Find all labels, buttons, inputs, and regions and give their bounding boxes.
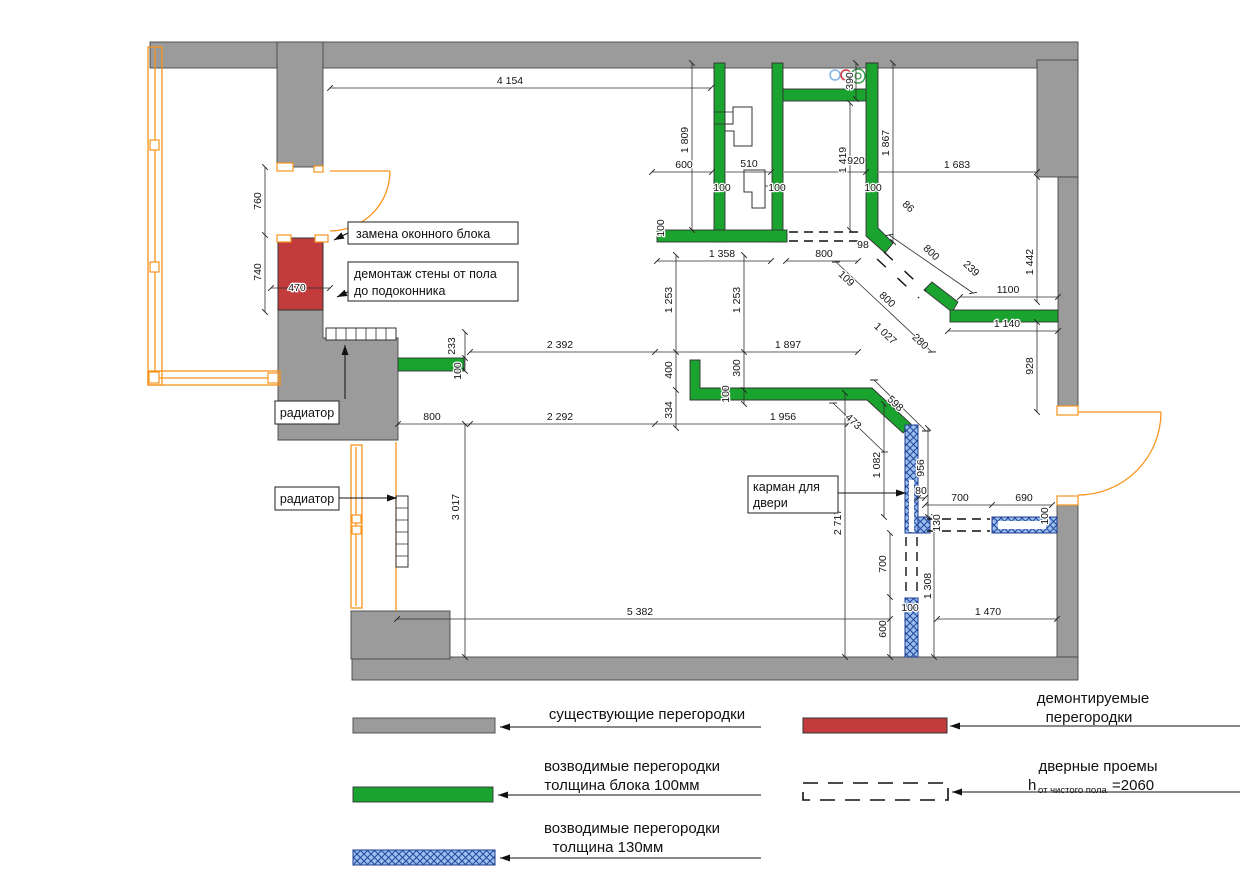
dimension-label: 280 [910, 331, 931, 352]
legend-label: существующие перегородки [549, 706, 745, 723]
callout-text: радиатор [280, 406, 334, 420]
dimension-label: 1 897 [775, 339, 801, 351]
legend-label: толщина блока 100мм [544, 777, 699, 794]
floor-plan-page: 4 1546005109201 6831001001001 3588009847… [0, 0, 1241, 875]
legend: существующие перегородки возводимые пере… [353, 690, 1240, 865]
dimension-label: 100 [1039, 507, 1051, 525]
dimension-label: 510 [740, 158, 758, 170]
dimension-label: 800 [921, 242, 942, 263]
legend-swatch-demolished [803, 718, 947, 733]
dimension-label: 1 140 [994, 318, 1020, 330]
legend-new-walls-100: возводимые перегородки толщина блока 100… [353, 758, 761, 802]
dimension-label: 700 [877, 555, 889, 573]
dimension-label: 100 [901, 602, 919, 614]
walls-existing [150, 42, 1078, 680]
callout-text: карман для [753, 480, 820, 494]
dimension-label: 109 [836, 268, 857, 289]
dimension-label: 1100 [997, 284, 1020, 296]
cold-water-riser-icon [830, 70, 840, 80]
legend-door-openings: дверные проемы h от чистого пола =2060 [803, 758, 1240, 800]
dimension-label: 100 [720, 385, 732, 403]
door-jamb [277, 163, 293, 171]
dimension-label: 760 [252, 192, 264, 210]
callout-text: замена оконного блока [356, 227, 490, 241]
dimension-label: 130 [931, 514, 943, 532]
wall-demolished [278, 238, 323, 310]
dimension-label: 1 082 [871, 452, 883, 478]
radiator-left-symbol [396, 496, 408, 567]
legend-existing-walls: существующие перегородки [353, 706, 761, 733]
door-jamb [1057, 496, 1078, 505]
dimension-label: 800 [815, 248, 833, 260]
legend-label: возводимые перегородки [544, 758, 720, 775]
dimension-label: 98 [857, 239, 869, 251]
radiator-top-symbol [326, 328, 396, 340]
door-jamb [314, 166, 323, 172]
dimension-label: 2 292 [547, 411, 573, 423]
legend-label: демонтируемые [1037, 690, 1150, 707]
dimension-label: 1 867 [880, 130, 892, 156]
dimension-label: 1 470 [975, 606, 1001, 618]
door-jamb [1057, 406, 1078, 415]
legend-new-walls-130: возводимые перегородки толщина 130мм [353, 820, 761, 865]
dimension-label: 600 [675, 159, 693, 171]
dimension-label: 1 308 [922, 573, 934, 599]
callout-radiator-left: радиатор [275, 487, 339, 510]
callout-text: двери [753, 496, 788, 510]
dimension-label: 100 [864, 182, 882, 194]
dimension-label: 400 [663, 361, 675, 379]
dimension-label: 1 442 [1024, 249, 1036, 275]
dimension-label: 334 [663, 401, 675, 419]
legend-swatch-new-100 [353, 787, 493, 802]
dimension-label: 1 253 [663, 287, 675, 313]
dimension-label: 100 [452, 362, 464, 380]
dimension-label: 100 [768, 182, 786, 194]
legend-swatch-existing [353, 718, 495, 733]
dimension-label: 86 [900, 198, 917, 215]
dimension-label: 1 809 [679, 127, 691, 153]
legend-demolished-walls: демонтируемые перегородки [803, 690, 1240, 733]
dimension-label: 4 154 [497, 75, 523, 87]
legend-label: =2060 [1112, 777, 1154, 794]
dimension-label: 80 [915, 485, 927, 497]
legend-label: дверные проемы [1038, 758, 1157, 775]
legend-label: возводимые перегородки [544, 820, 720, 837]
legend-label: перегородки [1046, 709, 1133, 726]
dimension-label: 3 017 [450, 494, 462, 520]
dimension-label: 928 [1024, 357, 1036, 375]
dimension-label: 1 253 [731, 287, 743, 313]
dimension-label: 1 419 [837, 147, 849, 173]
dimension-label: 300 [731, 359, 743, 377]
dimension-label: 233 [446, 337, 458, 355]
dimension-label: 1 358 [709, 248, 735, 260]
dimension-label: 800 [423, 411, 441, 423]
floor-plan-drawing: 4 1546005109201 6831001001001 3588009847… [0, 0, 1241, 875]
callout-door-pocket: карман для двери [748, 476, 838, 513]
legend-label: h [1028, 777, 1036, 794]
dimension-label: 1 956 [770, 411, 796, 423]
dimension-label: 690 [1015, 492, 1033, 504]
dimension-label: 390 [844, 72, 856, 90]
dimension-label: 239 [961, 258, 982, 279]
dimension-label: 920 [847, 155, 865, 167]
dimension-label: 800 [877, 289, 898, 310]
dimension-label: 5 382 [627, 606, 653, 618]
legend-swatch-door-opening [803, 783, 948, 800]
door-swing-arc [1078, 412, 1161, 495]
callout-text: демонтаж стены от пола [354, 267, 497, 281]
dimension-label: 1 683 [944, 159, 970, 171]
callout-text: до подоконника [354, 284, 446, 298]
dimension-label: 956 [915, 459, 927, 477]
legend-label: толщина 130мм [553, 839, 664, 856]
dimension-label: 2 392 [547, 339, 573, 351]
callout-wall-demolition: демонтаж стены от пола до подоконника [348, 262, 518, 301]
callout-text: радиатор [280, 492, 334, 506]
callout-window-replacement: замена оконного блока [348, 222, 518, 244]
dimension-label: 470 [288, 282, 306, 294]
legend-swatch-new-130 [353, 850, 495, 865]
dimension-label: 740 [252, 263, 264, 281]
dimension-label: 100 [713, 182, 731, 194]
dimension-label: 1 027 [871, 320, 899, 347]
callout-radiator-top: радиатор [275, 401, 339, 424]
dimension-label: 100 [655, 219, 667, 237]
dimension-label: 700 [951, 492, 969, 504]
legend-label-subscript: от чистого пола [1038, 785, 1108, 796]
dimension-label: 600 [877, 620, 889, 638]
